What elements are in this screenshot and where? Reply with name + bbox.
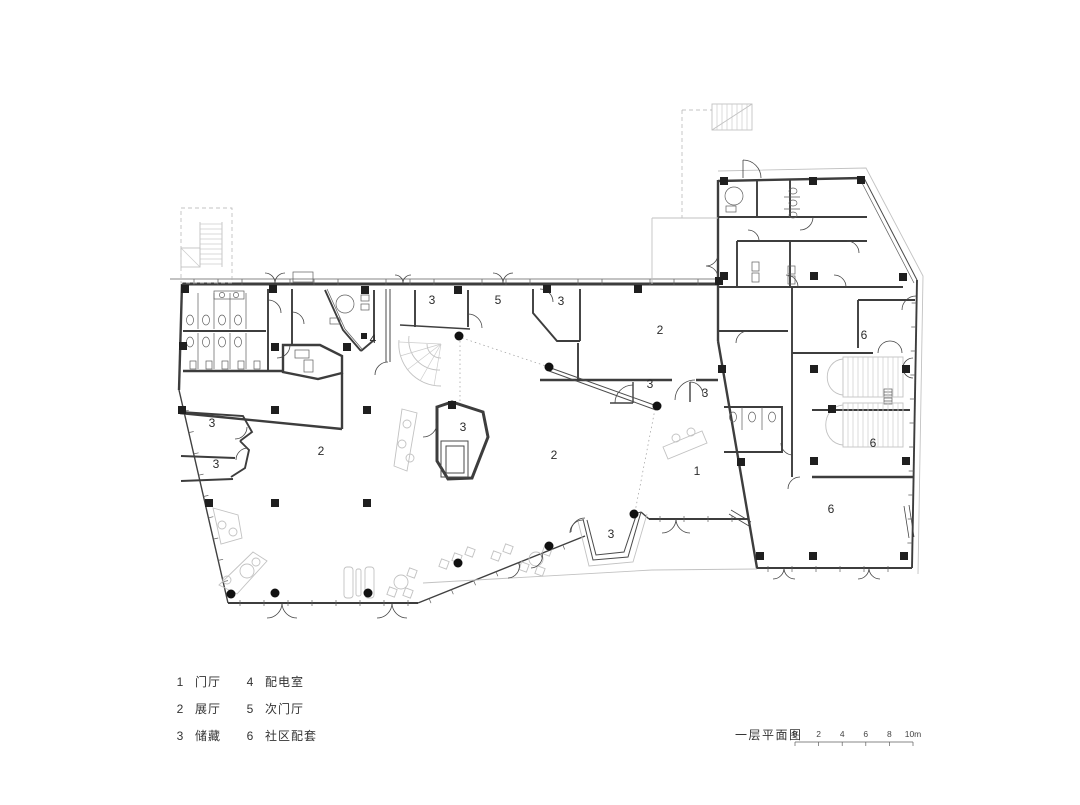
legend-number: 3 xyxy=(175,729,185,743)
curtain-wall-columns xyxy=(227,332,662,599)
room-label: 2 xyxy=(318,444,325,458)
reference-lines xyxy=(460,338,655,512)
room-label: 3 xyxy=(608,527,615,541)
left-building-walls xyxy=(170,180,757,603)
stairwell-upper xyxy=(827,357,903,397)
legend-number: 4 xyxy=(245,675,255,689)
legend: 1 门厅 2 展厅 3 储藏 4 配电室 5 次门厅 6 社区配套 xyxy=(175,668,317,749)
room-label: 3 xyxy=(429,293,436,307)
legend-item: 1 门厅 xyxy=(175,668,221,695)
room-label: 3 xyxy=(460,420,467,434)
legend-number: 1 xyxy=(175,675,185,689)
room-label: 6 xyxy=(828,502,835,516)
legend-item: 6 社区配套 xyxy=(245,722,317,749)
room-label: 5 xyxy=(495,293,502,307)
doors xyxy=(235,160,916,618)
legend-label: 社区配套 xyxy=(265,727,317,744)
legend-column-2: 4 配电室 5 次门厅 6 社区配套 xyxy=(245,668,317,749)
toilet-stalls-2 xyxy=(730,407,776,430)
room-label: 3 xyxy=(209,416,216,430)
legend-number: 2 xyxy=(175,702,185,716)
exterior-stair-left xyxy=(181,208,232,283)
legend-number: 6 xyxy=(245,729,255,743)
legend-item: 3 储藏 xyxy=(175,722,221,749)
room-label: 1 xyxy=(694,464,701,478)
window-mullion-ticks xyxy=(184,279,917,606)
room-label: 4 xyxy=(370,332,377,346)
lounge-furniture xyxy=(344,544,552,598)
scale-label: 10m xyxy=(905,729,922,739)
scale-label: 4 xyxy=(840,729,845,739)
legend-column-1: 1 门厅 2 展厅 3 储藏 xyxy=(175,668,221,749)
scale-label: 6 xyxy=(863,729,868,739)
room-label: 3 xyxy=(647,377,654,391)
toilet-stalls xyxy=(187,291,261,369)
label-marker xyxy=(361,333,367,339)
scale-label: 8 xyxy=(887,729,892,739)
room-label: 3 xyxy=(702,386,709,400)
floor-plan-drawing: 35324333332213666 0246810m xyxy=(0,0,1080,805)
legend-label: 储藏 xyxy=(195,727,221,744)
legend-label: 展厅 xyxy=(195,700,221,717)
structural-columns xyxy=(178,176,910,560)
drawing-title: 一层平面图 xyxy=(735,726,803,743)
legend-number: 5 xyxy=(245,702,255,716)
stairs-and-furniture xyxy=(181,104,903,598)
scale-bar: 0246810m xyxy=(793,729,922,746)
spiral-stair xyxy=(399,336,441,386)
legend-item: 2 展厅 xyxy=(175,695,221,722)
legend-item: 4 配电室 xyxy=(245,668,317,695)
room-label: 2 xyxy=(551,448,558,462)
right-building-interior xyxy=(718,180,915,477)
scale-label: 2 xyxy=(816,729,821,739)
legend-label: 次门厅 xyxy=(265,700,304,717)
room-label: 6 xyxy=(870,436,877,450)
room-label: 6 xyxy=(861,328,868,342)
legend-label: 门厅 xyxy=(195,673,221,690)
floor-plan-page: 35324333332213666 0246810m 1 门厅 2 展厅 3 储… xyxy=(0,0,1080,805)
room-label: 2 xyxy=(657,323,664,337)
room-label: 3 xyxy=(558,294,565,308)
left-building-interior xyxy=(180,289,718,566)
room-label: 3 xyxy=(213,457,220,471)
legend-item: 5 次门厅 xyxy=(245,695,317,722)
legend-label: 配电室 xyxy=(265,673,304,690)
office-desks xyxy=(295,350,313,372)
